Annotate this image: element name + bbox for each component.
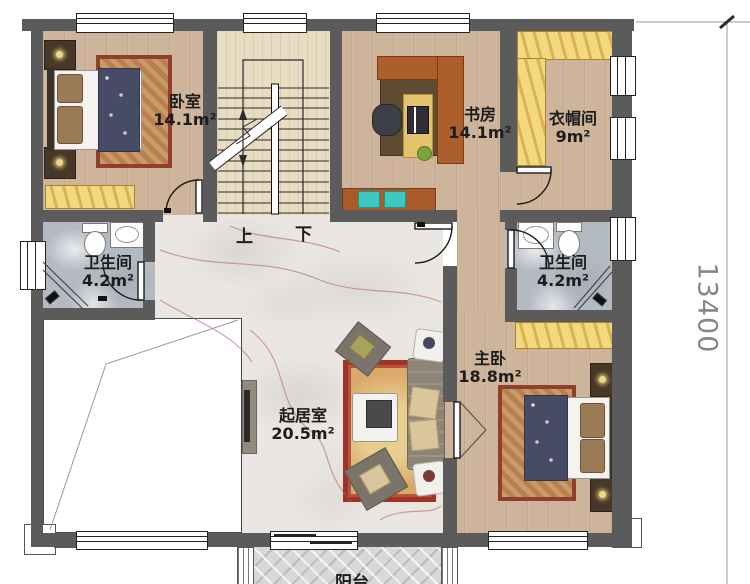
room-area: 4.2m² [513,272,613,290]
window-top-bedroom [76,13,174,33]
room-label-living: 起居室 20.5m² [253,407,353,443]
bedroom-blanket [98,68,140,152]
sink-basin-right-bath [523,226,549,244]
floor-cushion-bottom-medallion [423,470,435,482]
bedroom-bed-headboard [47,68,54,150]
wall-stair-study [330,31,342,215]
wall-hall-bath-stub-top [505,222,517,230]
wall-master-top [505,310,612,322]
window-top-stair [243,13,307,33]
balcony-rail-left [237,547,254,584]
wall-exterior-right [612,19,632,546]
sofa-pillow-1 [408,386,440,420]
window-bottom-void [76,531,208,550]
study-chair [372,104,402,136]
wall-study-cloakroom [500,31,517,172]
floor-cushion-top-medallion [423,337,435,349]
sliding-door-leaf-1 [274,534,316,537]
bedroom-nightstand-top [44,40,76,70]
room-label-cloakroom: 衣帽间 9m² [523,110,623,146]
room-label-master: 主卧 18.8m² [440,350,540,386]
wall-bath-left-bottom [31,308,155,320]
master-blanket [524,395,568,481]
room-area: 9m² [523,128,623,146]
room-label-bedroom: 卧室 14.1m² [135,93,235,129]
window-right-1 [610,56,636,96]
bedroom-nightstand-bottom [44,147,76,179]
sliding-door-leaf-2 [310,541,352,544]
study-bench-cushion-2 [384,191,406,208]
wall-study-bottom [330,210,457,222]
room-label-study: 书房 14.1m² [432,106,528,142]
void-area [43,318,242,533]
window-left-bathroom [20,241,46,290]
room-area: 20.5m² [253,425,353,443]
study-plant [417,146,432,161]
sink-basin-left-bath [115,226,139,243]
room-name: 起居室 [253,407,353,425]
wall-cloakroom-bottom [500,210,612,222]
room-name: 主卧 [440,350,540,368]
room-name: 卫生间 [58,254,158,272]
wall-bedroom-bottom [43,210,163,222]
wall-living-master-low [443,458,457,533]
room-name: 书房 [432,106,528,124]
balcony-rail-right [441,547,458,584]
room-area: 14.1m² [135,111,235,129]
master-pillow-top [580,403,605,438]
room-name: 卧室 [135,93,235,111]
dimension-tick [720,16,734,28]
room-name: 衣帽间 [523,110,623,128]
window-right-3 [610,217,636,261]
stair-down-label: 下 [295,220,312,245]
window-top-study [376,13,470,33]
room-label-bathroom-left: 卫生间 4.2m² [58,254,158,290]
room-label-bathroom-right: 卫生间 4.2m² [513,254,613,290]
bedroom-shelf [45,185,135,209]
room-area: 14.1m² [432,124,528,142]
master-wardrobe [515,322,614,349]
sofa-pillow-2 [409,419,440,452]
coffee-table-tray [366,400,392,428]
room-area: 18.8m² [440,368,540,386]
room-area: 4.2m² [58,272,158,290]
study-bench-cushion-1 [358,191,380,208]
bedroom-pillow-bottom [57,106,83,144]
stair-up-label: 上 [236,222,253,247]
study-computer [407,106,429,134]
master-pillow-bottom [580,439,605,473]
bedroom-pillow-top [57,74,83,103]
window-bottom-master [488,531,588,550]
tv [244,390,250,442]
floor-plan: 卧室 14.1m² 书房 14.1m² 衣帽间 9m² 卫生间 4.2m² 卫生… [0,0,750,584]
room-name: 卫生间 [513,254,613,272]
dimension-value: 13400 [692,263,723,333]
room-label-balcony: 阳台 [322,574,382,584]
wall-bath-left-stub-bottom [143,300,155,308]
cloakroom-wardrobe-top [517,31,614,60]
